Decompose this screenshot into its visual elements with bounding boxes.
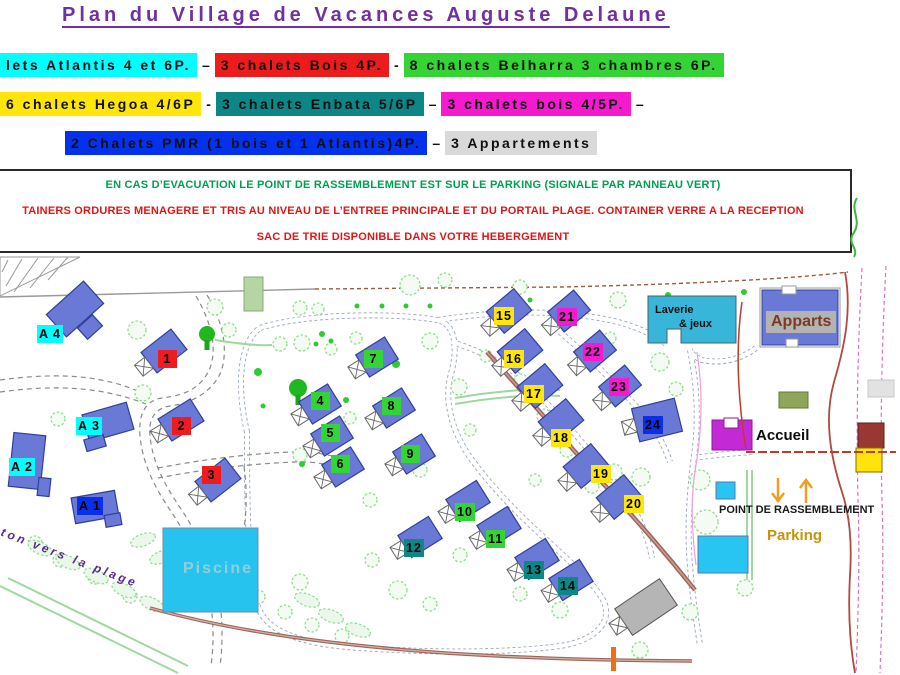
unit-marker-3: 3 bbox=[202, 466, 221, 484]
unit-marker-A2: A 2 bbox=[9, 458, 35, 476]
legend-dash: – bbox=[631, 96, 649, 112]
unit-marker-24: 24 bbox=[643, 416, 663, 434]
notice-containers: TAINERS ORDURES MENAGERE ET TRIS AU NIVE… bbox=[0, 205, 844, 217]
marker-layer: Piscine Laverie & jeux Apparts Accueil P… bbox=[0, 255, 900, 675]
legend-bois-45p: 3 chalets bois 4/5P. bbox=[441, 92, 630, 116]
unit-marker-13: 13 bbox=[524, 561, 544, 579]
point-de-rassemblement-label: POINT DE RASSEMBLEMENT bbox=[719, 504, 874, 516]
village-plan-page: { "title": "Plan du Village de Vacances … bbox=[0, 0, 900, 675]
unit-marker-4: 4 bbox=[311, 392, 330, 410]
legend-dash: - bbox=[389, 57, 404, 73]
legend-dash: – bbox=[427, 135, 445, 151]
unit-marker-20: 20 bbox=[624, 495, 644, 513]
piscine-label: Piscine bbox=[183, 560, 253, 578]
unit-marker-19: 19 bbox=[591, 465, 611, 483]
unit-marker-10: 10 bbox=[455, 503, 475, 521]
page-title: Plan du Village de Vacances Auguste Dela… bbox=[62, 4, 670, 27]
unit-marker-16: 16 bbox=[504, 350, 524, 368]
legend-atlantis: lets Atlantis 4 et 6P. bbox=[0, 53, 197, 77]
unit-marker-23: 23 bbox=[609, 378, 629, 396]
notice-evacuation: EN CAS D’EVACUATION LE POINT DE RASSEMBL… bbox=[0, 179, 844, 191]
accueil-label: Accueil bbox=[756, 427, 809, 444]
legend-enbata: 3 chalets Enbata 5/6P bbox=[216, 92, 424, 116]
unit-marker-1: 1 bbox=[158, 350, 177, 368]
unit-marker-11: 11 bbox=[486, 530, 505, 548]
unit-marker-A4: A 4 bbox=[37, 325, 63, 343]
unit-marker-2: 2 bbox=[172, 417, 191, 435]
unit-marker-7: 7 bbox=[364, 350, 383, 368]
legend-row-2: 6 chalets Hegoa 4/6P-3 chalets Enbata 5/… bbox=[0, 90, 649, 117]
unit-marker-21: 21 bbox=[557, 308, 577, 326]
legend-appartements: 3 Appartements bbox=[445, 131, 597, 155]
legend-row-1: lets Atlantis 4 et 6P.–3 chalets Bois 4P… bbox=[0, 51, 724, 78]
notice-sac-de-trie: SAC DE TRIE DISPONIBLE DANS VOTRE HEBERG… bbox=[0, 231, 844, 243]
legend-dash: – bbox=[197, 57, 215, 73]
unit-marker-12: 12 bbox=[404, 539, 424, 557]
unit-marker-9: 9 bbox=[401, 445, 420, 463]
evacuation-notice-box: EN CAS D’EVACUATION LE POINT DE RASSEMBL… bbox=[0, 169, 852, 253]
legend-belharra: 8 chalets Belharra 3 chambres 6P. bbox=[404, 53, 724, 77]
plant-squiggle-icon bbox=[845, 196, 867, 258]
unit-marker-A1: A 1 bbox=[77, 497, 103, 515]
unit-marker-22: 22 bbox=[583, 343, 603, 361]
legend-hegoa: 6 chalets Hegoa 4/6P bbox=[0, 92, 201, 116]
apparts-label: Apparts bbox=[766, 311, 836, 333]
legend-dash: - bbox=[201, 96, 216, 112]
unit-marker-A3: A 3 bbox=[76, 417, 102, 435]
parking-label: Parking bbox=[767, 527, 822, 544]
unit-marker-6: 6 bbox=[331, 455, 350, 473]
legend-pmr: 2 Chalets PMR (1 bois et 1 Atlantis)4P. bbox=[65, 131, 427, 155]
unit-marker-8: 8 bbox=[382, 397, 401, 415]
legend-row-3: 2 Chalets PMR (1 bois et 1 Atlantis)4P.–… bbox=[65, 129, 597, 156]
laverie-label: Laverie bbox=[655, 304, 694, 316]
laverie-label-line2: & jeux bbox=[679, 318, 712, 330]
unit-marker-17: 17 bbox=[524, 385, 544, 403]
legend-bois-4p: 3 chalets Bois 4P. bbox=[215, 53, 389, 77]
chemin-plage-label: ton vers la plage bbox=[0, 525, 140, 590]
village-map: Piscine Laverie & jeux Apparts Accueil P… bbox=[0, 255, 900, 675]
unit-marker-14: 14 bbox=[558, 577, 578, 595]
unit-marker-5: 5 bbox=[321, 424, 340, 442]
unit-marker-18: 18 bbox=[551, 429, 571, 447]
legend-dash: – bbox=[424, 96, 442, 112]
unit-marker-15: 15 bbox=[494, 307, 514, 325]
